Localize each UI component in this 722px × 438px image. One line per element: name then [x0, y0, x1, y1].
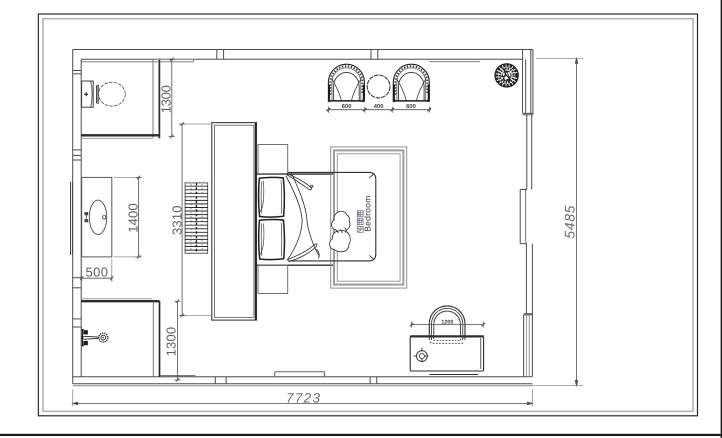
- svg-text:7723: 7723: [286, 390, 320, 405]
- svg-text:400: 400: [374, 103, 384, 110]
- svg-text:600: 600: [342, 103, 352, 110]
- svg-text:1300: 1300: [159, 85, 174, 113]
- svg-text:1300: 1300: [164, 327, 179, 357]
- svg-text:Bedroom: Bedroom: [363, 196, 373, 232]
- svg-text:600: 600: [406, 103, 416, 110]
- svg-text:1200: 1200: [441, 319, 453, 325]
- svg-text:500: 500: [86, 264, 109, 279]
- svg-text:1400: 1400: [126, 203, 141, 233]
- svg-text:3310: 3310: [170, 206, 185, 236]
- svg-text:5485: 5485: [562, 205, 578, 238]
